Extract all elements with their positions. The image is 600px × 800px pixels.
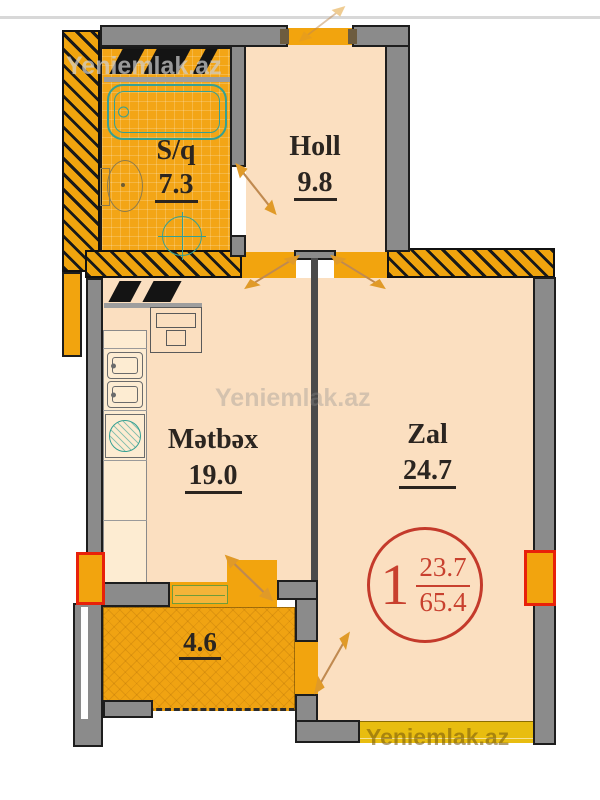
total-area-value: 65.4	[416, 587, 469, 618]
wall-hall-right	[385, 45, 410, 252]
balcony-area: 4.6	[150, 628, 250, 660]
counter-divider	[103, 520, 147, 521]
watermark: Yeniemlak.az	[66, 52, 222, 81]
wall-top-left	[100, 25, 288, 47]
watermark: Yeniemlak.az	[366, 724, 509, 751]
hall-area: 9.8	[250, 168, 380, 201]
door-swing-arrow-icon	[327, 253, 389, 291]
window-marker-left	[76, 552, 105, 605]
floor-plan: S/q 7.3 Holl 9.8 Mətbəx 19.0 Zal 24.7 4.…	[0, 0, 600, 800]
window-marker-right	[524, 550, 556, 606]
living-area-value: 23.7	[416, 552, 469, 586]
hatched-wall-mid	[85, 250, 242, 278]
kitchen-area: 19.0	[138, 461, 288, 494]
wall-top-right	[352, 25, 410, 47]
wall-bottom-left-outer	[73, 603, 103, 747]
wall-balcony-right-horz	[277, 580, 318, 600]
wall-kitchen-living-partition	[311, 258, 318, 584]
wall-bottom-left-cavity	[81, 607, 88, 719]
door-swing-arrow-icon	[241, 253, 303, 291]
door-swing-arrow-icon	[296, 4, 348, 44]
bathroom-label: S/q	[116, 136, 236, 165]
wall-kitchen-bottom-left	[103, 582, 170, 607]
wall-bottom-left-foot	[103, 700, 153, 718]
kitchen-sink-icon	[107, 352, 143, 379]
bathtub-icon	[107, 84, 227, 140]
door-swing-arrow-icon	[312, 628, 352, 698]
entrance-door-jamb-right	[348, 29, 357, 44]
kitchen-sink-icon	[107, 381, 143, 408]
room-count: 1	[380, 556, 409, 614]
living-label: Zal	[350, 420, 505, 449]
living-area: 24.7	[350, 456, 505, 489]
wall-right	[533, 277, 556, 745]
stove-icon	[150, 307, 202, 353]
watermark: Yeniemlak.az	[215, 384, 371, 413]
exterior-strip-left	[62, 272, 82, 357]
bathroom-area: 7.3	[116, 170, 236, 203]
apartment-info-badge: 1 23.7 65.4	[367, 527, 483, 643]
hall-label: Holl	[250, 132, 380, 161]
counter-divider	[103, 348, 147, 349]
entrance-door-jamb-left	[280, 29, 289, 44]
area-fraction: 23.7 65.4	[416, 552, 469, 617]
door-swing-arrow-icon	[222, 552, 276, 604]
wall-kitchen-left	[86, 278, 103, 560]
hatched-wall-top-right	[387, 248, 555, 278]
kitchen-label: Mətbəx	[138, 425, 288, 454]
counter-divider	[103, 410, 147, 411]
radiator-icon	[172, 585, 228, 604]
sink-icon	[162, 216, 202, 256]
wall-bottom-mid-horz	[295, 720, 360, 743]
